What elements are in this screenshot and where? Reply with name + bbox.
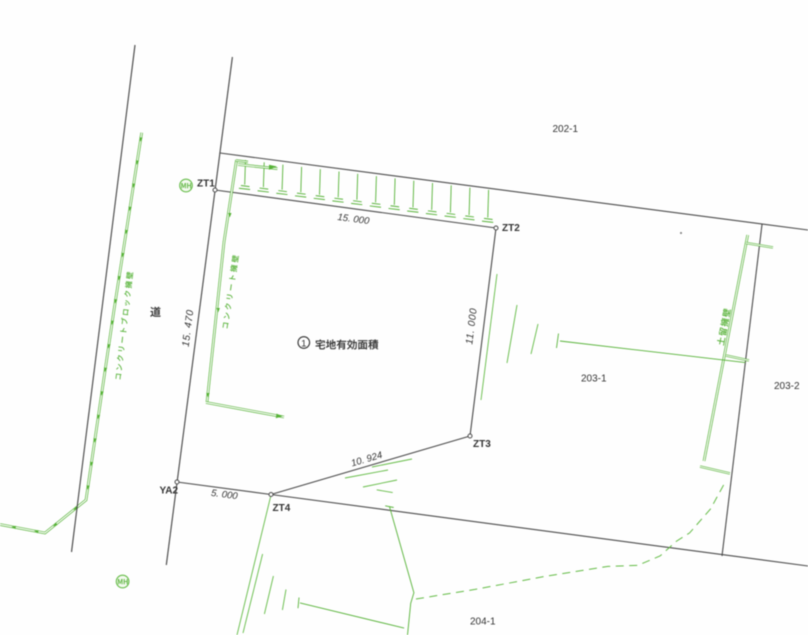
svg-text:ZT3: ZT3: [473, 439, 491, 450]
svg-text:203-2: 203-2: [774, 381, 800, 392]
svg-text:ZT2: ZT2: [502, 223, 520, 234]
svg-text:202-1: 202-1: [553, 124, 579, 135]
svg-text:ZT1: ZT1: [197, 179, 215, 190]
svg-text:1: 1: [301, 338, 306, 349]
svg-text:ZT4: ZT4: [273, 503, 291, 514]
svg-text:203-1: 203-1: [581, 374, 607, 385]
svg-text:YA2: YA2: [160, 486, 179, 497]
svg-text:204-1: 204-1: [470, 617, 496, 628]
